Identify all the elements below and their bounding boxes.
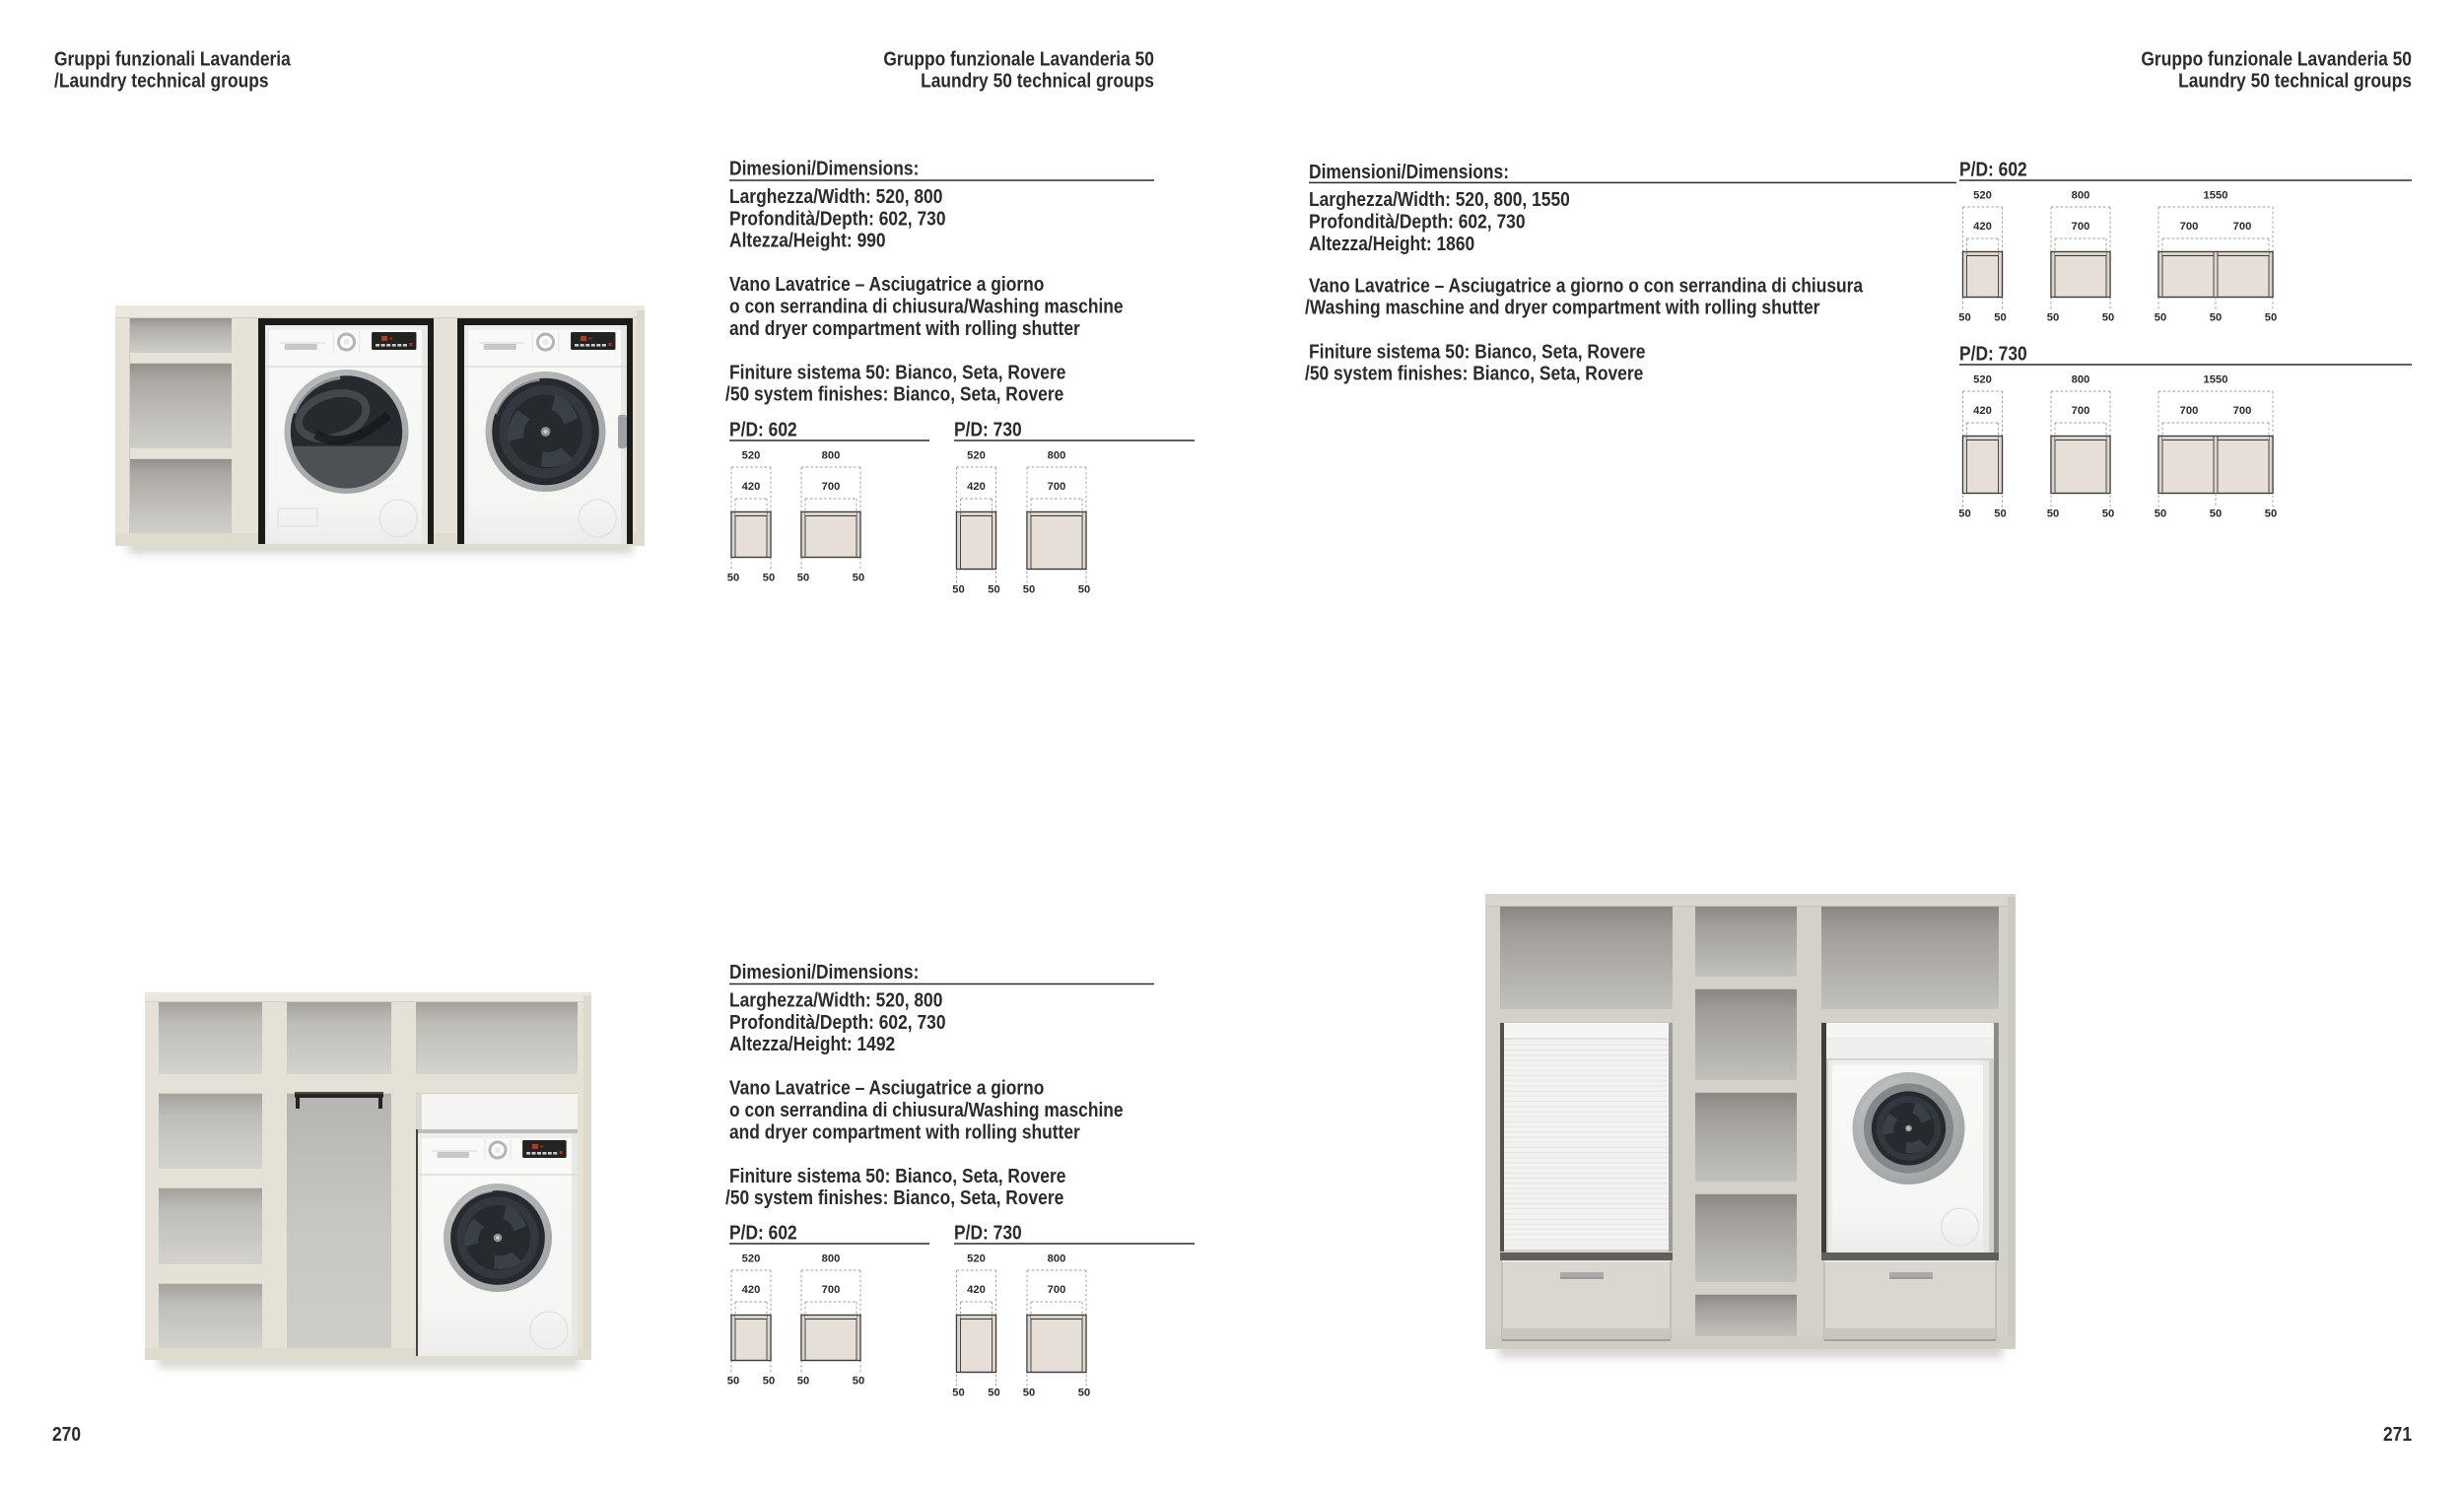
svg-text:700: 700 [2233,221,2252,233]
svg-text:50: 50 [853,1376,864,1387]
svg-text:Dimensioni/Dimensions:: Dimensioni/Dimensions: [1309,162,1509,183]
svg-text:Vano Lavatrice – Asciugatrice: Vano Lavatrice – Asciugatrice a giorno [729,1078,1044,1100]
svg-text:50: 50 [1023,584,1035,596]
svg-text:50: 50 [1078,584,1090,596]
svg-text:Larghezza/Width: 520, 800: Larghezza/Width: 520, 800 [729,186,942,208]
svg-text:50: 50 [1994,508,2006,520]
svg-text:50: 50 [1958,312,1970,324]
svg-text:800: 800 [822,1253,841,1265]
svg-text:50: 50 [988,1387,999,1399]
svg-text:o con serrandina di chiusura/W: o con serrandina di chiusura/Washing mas… [729,297,1124,318]
svg-text:50: 50 [727,573,739,584]
svg-text:Altezza/Height: 1492: Altezza/Height: 1492 [729,1034,895,1055]
svg-text:50: 50 [988,584,999,596]
svg-text:420: 420 [742,481,761,493]
svg-text:700: 700 [1048,1284,1066,1296]
svg-text:800: 800 [1048,450,1066,462]
svg-text:and dryer compartment with rol: and dryer compartment with rolling shutt… [729,1121,1080,1143]
svg-text:Larghezza/Width: 520, 800: Larghezza/Width: 520, 800 [729,990,942,1012]
svg-text:and dryer compartment with rol: and dryer compartment with rolling shutt… [729,318,1080,340]
svg-text:Gruppo funzionale Lavanderia 5: Gruppo funzionale Lavanderia 50 [883,49,1154,71]
svg-text:50: 50 [853,573,864,584]
svg-text:50: 50 [1958,508,1970,520]
svg-text:Profondità/Depth: 602, 730: Profondità/Depth: 602, 730 [1309,212,1526,234]
svg-text:Vano Lavatrice – Asciugatrice: Vano Lavatrice – Asciugatrice a giorno [729,274,1044,296]
svg-text:800: 800 [822,450,841,462]
svg-text:800: 800 [1048,1253,1066,1265]
svg-text:700: 700 [2180,221,2199,233]
svg-text:P/D: 730: P/D: 730 [954,420,1022,441]
svg-text:P/D: 730: P/D: 730 [954,1223,1022,1245]
svg-text:Laundry 50 technical groups: Laundry 50 technical groups [921,71,1154,93]
svg-text:50: 50 [797,1376,809,1387]
svg-text:Vano Lavatrice – Asciugatrice: Vano Lavatrice – Asciugatrice a giorno o… [1309,275,1864,297]
svg-text:P/D: 730: P/D: 730 [1959,344,2027,366]
svg-text:Profondità/Depth: 602, 730: Profondità/Depth: 602, 730 [729,208,946,230]
svg-text:Gruppi funzionali Lavanderia: Gruppi funzionali Lavanderia [54,49,292,71]
svg-text:50: 50 [763,1376,775,1387]
svg-text:/50 system finishes: Bianco, S: /50 system finishes: Bianco, Seta, Rover… [1305,364,1643,385]
svg-text:700: 700 [2180,405,2199,417]
svg-text:Laundry 50 technical groups: Laundry 50 technical groups [2178,71,2412,93]
svg-text:520: 520 [742,1253,761,1265]
svg-text:P/D: 602: P/D: 602 [729,1223,797,1245]
svg-text:271: 271 [2383,1424,2412,1446]
svg-text:520: 520 [1973,190,1992,202]
svg-text:700: 700 [822,1284,841,1296]
svg-text:420: 420 [1973,405,1992,417]
svg-text:P/D: 602: P/D: 602 [729,420,797,441]
svg-text:1550: 1550 [2204,190,2228,202]
svg-text:50: 50 [2047,508,2059,520]
svg-text:50: 50 [763,573,775,584]
svg-text:270: 270 [52,1424,81,1446]
svg-text:50: 50 [727,1376,739,1387]
svg-text:50: 50 [2265,312,2277,324]
svg-text:700: 700 [1048,481,1066,493]
svg-text:700: 700 [2233,405,2252,417]
svg-text:50: 50 [2210,312,2222,324]
svg-text:/Laundry technical groups: /Laundry technical groups [54,71,269,93]
svg-text:50: 50 [2047,312,2059,324]
svg-text:520: 520 [967,1253,986,1265]
svg-text:Altezza/Height: 990: Altezza/Height: 990 [729,231,886,252]
svg-text:/Washing maschine and dryer co: /Washing maschine and dryer compartment … [1305,298,1820,319]
svg-text:/50 system finishes: Bianco, S: /50 system finishes: Bianco, Seta, Rover… [725,1187,1063,1209]
svg-text:o con serrandina di chiusura/W: o con serrandina di chiusura/Washing mas… [729,1100,1124,1121]
svg-text:Finiture sistema 50: Bianco, S: Finiture sistema 50: Bianco, Seta, Rover… [729,362,1065,383]
svg-text:50: 50 [2210,508,2222,520]
svg-text:P/D: 602: P/D: 602 [1959,160,2027,181]
svg-text:50: 50 [1023,1387,1035,1399]
svg-text:520: 520 [742,450,761,462]
svg-text:700: 700 [2072,405,2090,417]
svg-text:Finiture sistema 50: Bianco, S: Finiture sistema 50: Bianco, Seta, Rover… [729,1166,1065,1187]
svg-text:Dimesioni/Dimensions:: Dimesioni/Dimensions: [729,159,919,180]
svg-text:50: 50 [2102,312,2114,324]
svg-text:50: 50 [2265,508,2277,520]
svg-text:Profondità/Depth: 602, 730: Profondità/Depth: 602, 730 [729,1012,946,1034]
svg-text:Larghezza/Width: 520, 800, 155: Larghezza/Width: 520, 800, 1550 [1309,189,1570,211]
svg-text:50: 50 [1078,1387,1090,1399]
svg-text:420: 420 [967,481,986,493]
svg-text:Finiture sistema 50: Bianco, S: Finiture sistema 50: Bianco, Seta, Rover… [1309,341,1645,363]
svg-text:520: 520 [1973,374,1992,386]
svg-text:50: 50 [952,1387,964,1399]
svg-text:1550: 1550 [2204,374,2228,386]
svg-text:420: 420 [742,1284,761,1296]
svg-text:50: 50 [1994,312,2006,324]
svg-text:800: 800 [2072,374,2090,386]
svg-text:420: 420 [967,1284,986,1296]
svg-text:50: 50 [2155,312,2166,324]
svg-text:50: 50 [2102,508,2114,520]
svg-text:50: 50 [797,573,809,584]
svg-text:520: 520 [967,450,986,462]
svg-text:700: 700 [2072,221,2090,233]
svg-text:800: 800 [2072,190,2090,202]
svg-text:Altezza/Height: 1860: Altezza/Height: 1860 [1309,234,1474,255]
svg-text:Dimesioni/Dimensions:: Dimesioni/Dimensions: [729,962,919,983]
svg-text:50: 50 [952,584,964,596]
svg-text:Gruppo funzionale Lavanderia 5: Gruppo funzionale Lavanderia 50 [2141,49,2412,71]
svg-text:700: 700 [822,481,841,493]
svg-text:50: 50 [2155,508,2166,520]
svg-text:/50 system finishes: Bianco, S: /50 system finishes: Bianco, Seta, Rover… [725,384,1063,406]
svg-text:420: 420 [1973,221,1992,233]
